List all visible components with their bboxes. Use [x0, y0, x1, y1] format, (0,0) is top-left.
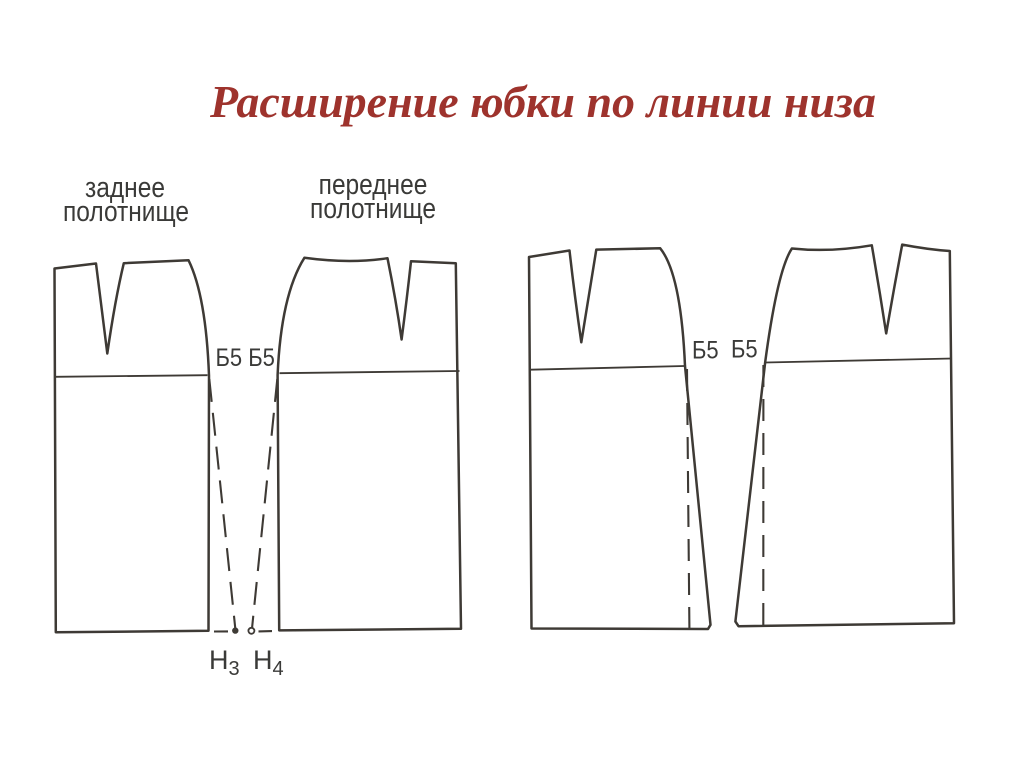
svg-text:полотнище: полотнище	[310, 192, 436, 224]
svg-text:полотнище: полотнище	[63, 195, 189, 227]
svg-text:Б5 Б5: Б5 Б5	[216, 344, 275, 371]
svg-text:Б5: Б5	[731, 335, 758, 362]
svg-text:Н4: Н4	[253, 645, 284, 680]
svg-text:Расширение юбки по линии низа: Расширение юбки по линии низа	[209, 76, 876, 127]
svg-text:Н3: Н3	[209, 645, 240, 680]
svg-text:Б5: Б5	[692, 336, 719, 363]
